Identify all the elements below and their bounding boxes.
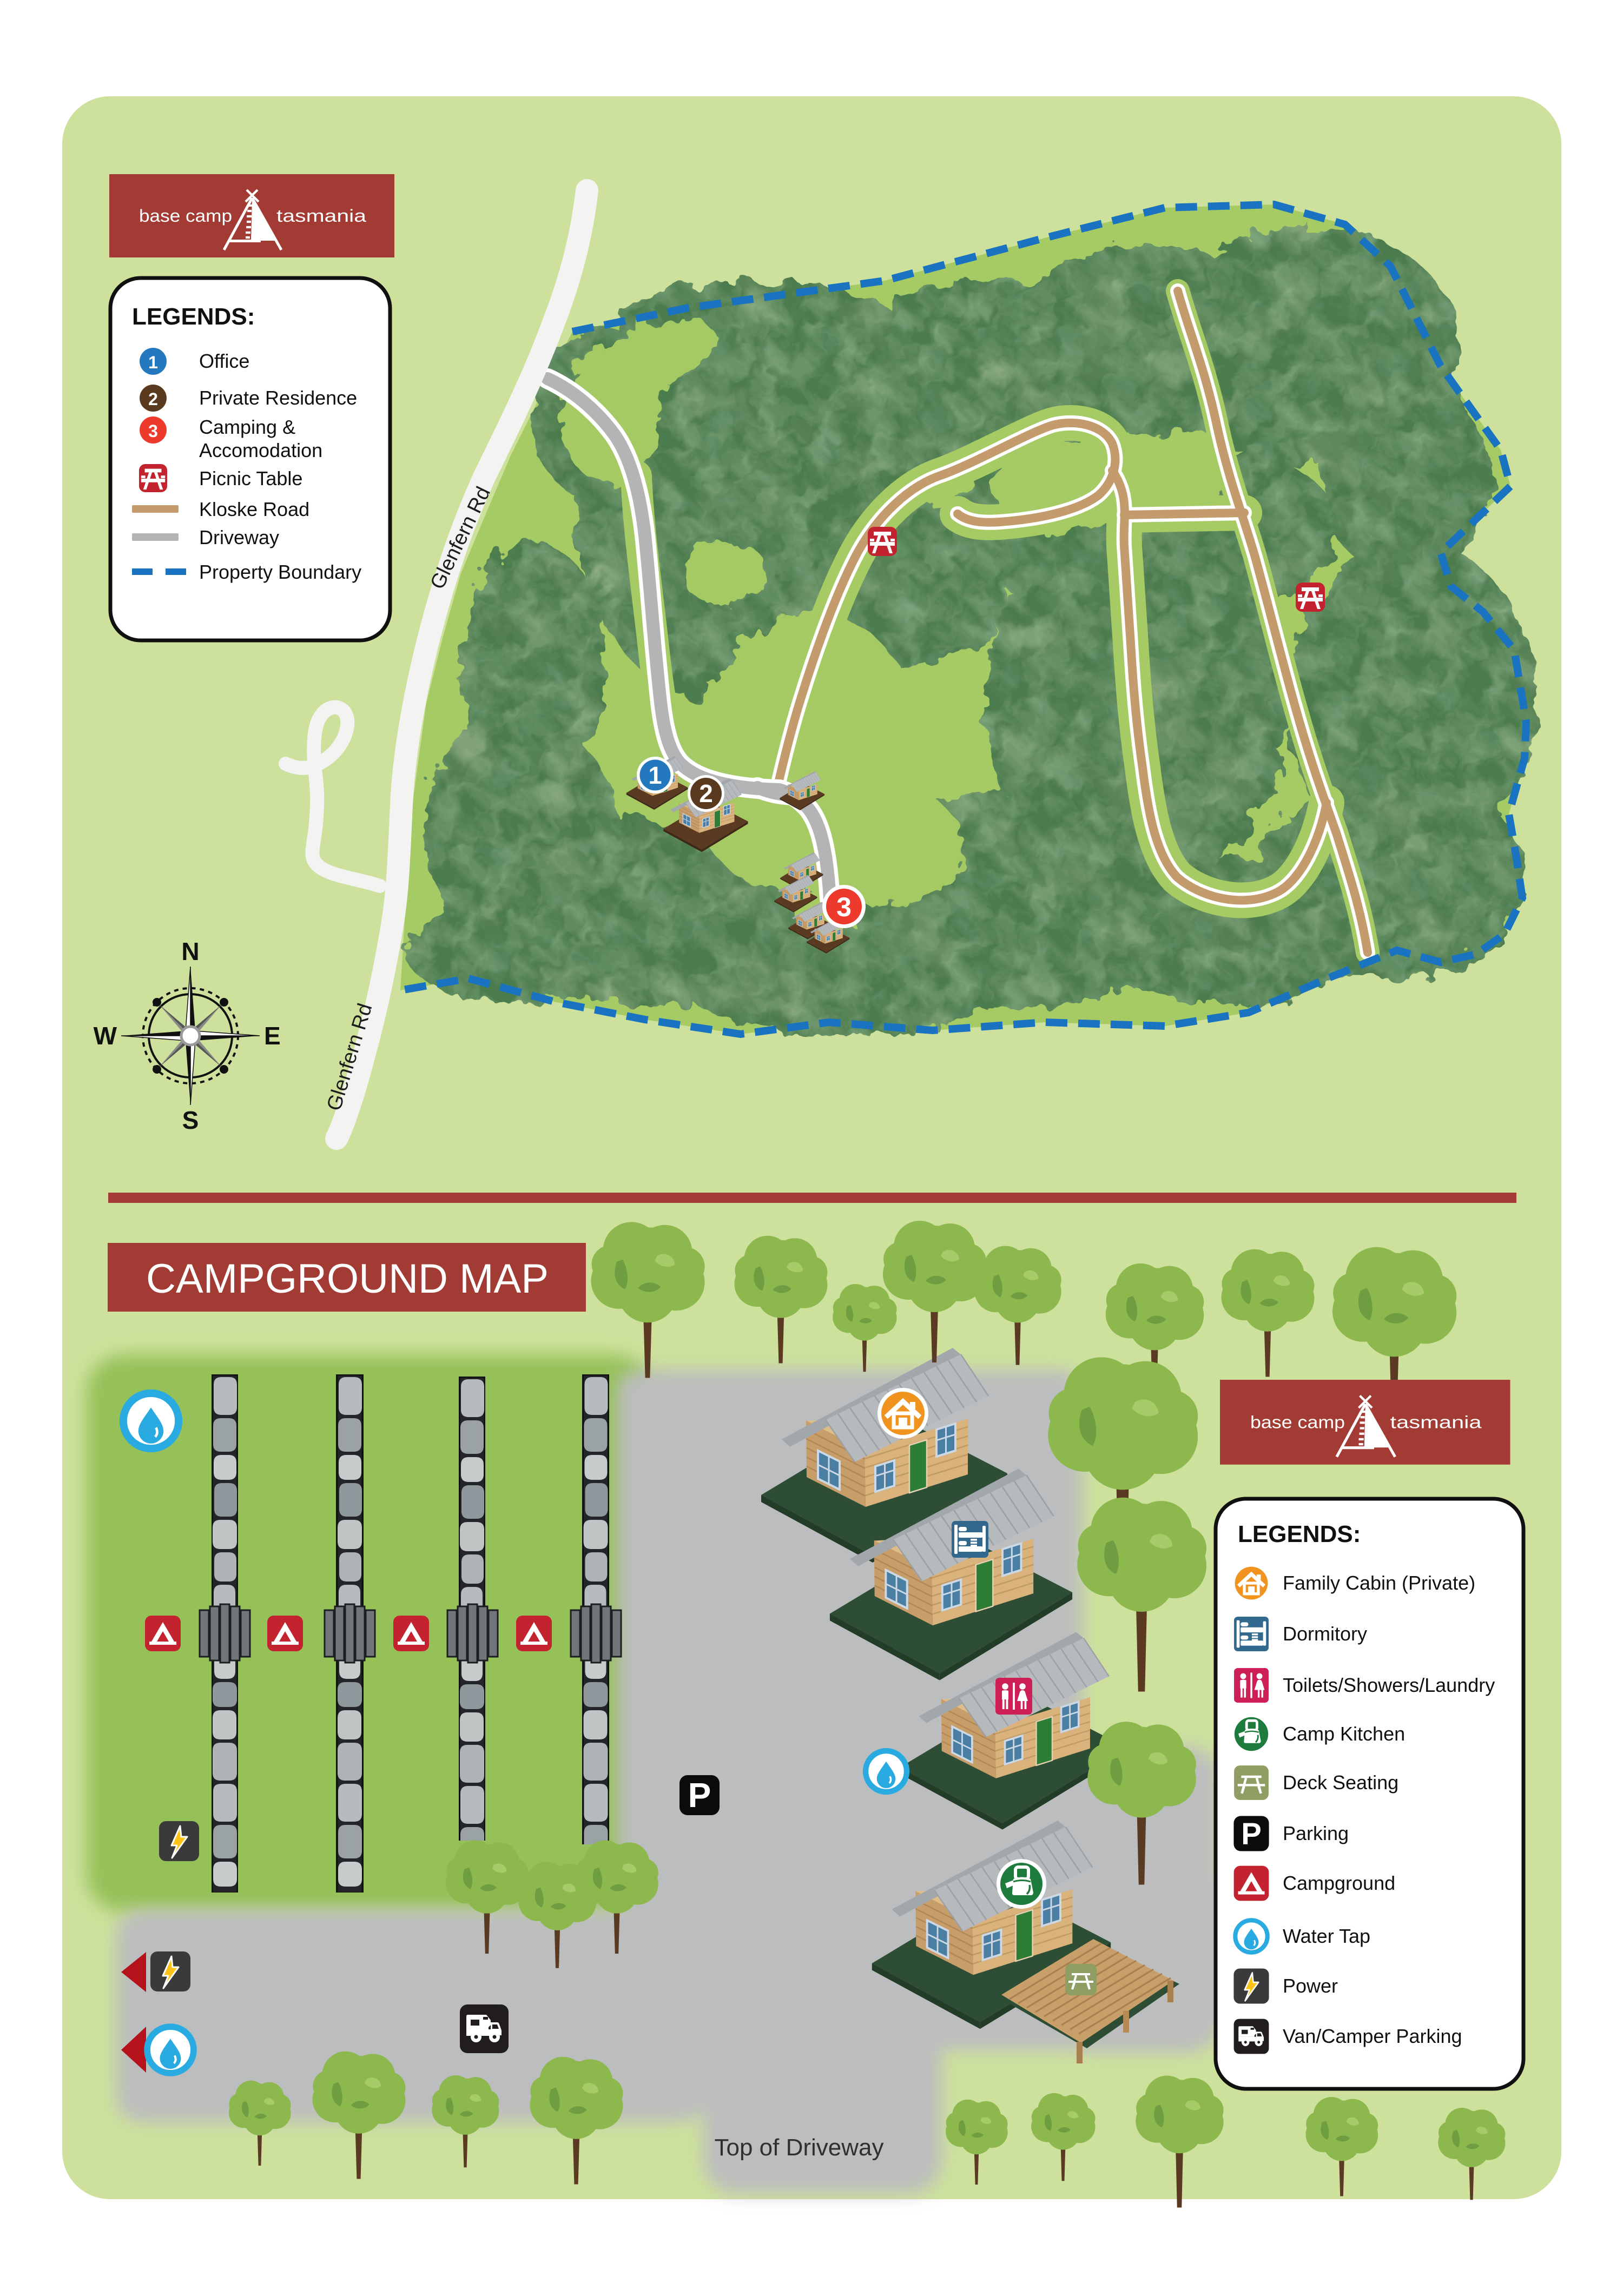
svg-text:2: 2 (699, 779, 713, 808)
svg-text:W: W (94, 1022, 117, 1050)
svg-text:Camp Kitchen: Camp Kitchen (1283, 1723, 1405, 1745)
svg-text:S: S (182, 1106, 199, 1134)
svg-text:Van/Camper Parking: Van/Camper Parking (1283, 2025, 1462, 2047)
svg-text:Accomodation: Accomodation (199, 439, 322, 461)
svg-text:Top of Driveway: Top of Driveway (714, 2134, 883, 2161)
svg-text:1: 1 (148, 353, 158, 372)
svg-text:LEGENDS:: LEGENDS: (1238, 1521, 1361, 1547)
svg-text:Water Tap: Water Tap (1283, 1925, 1370, 1947)
svg-text:Property Boundary: Property Boundary (199, 561, 361, 583)
svg-text:3: 3 (836, 892, 852, 922)
svg-text:CAMPGROUND MAP: CAMPGROUND MAP (146, 1256, 549, 1302)
svg-text:Driveway: Driveway (199, 526, 279, 548)
svg-text:1: 1 (648, 762, 662, 789)
svg-text:Family Cabin (Private): Family Cabin (Private) (1283, 1572, 1475, 1594)
svg-text:Private Residence: Private Residence (199, 387, 357, 409)
svg-text:Dormitory: Dormitory (1283, 1623, 1367, 1645)
svg-text:Kloske Road: Kloske Road (199, 498, 309, 520)
svg-text:Campground: Campground (1283, 1872, 1395, 1894)
svg-text:E: E (264, 1022, 281, 1050)
svg-text:LEGENDS:: LEGENDS: (132, 303, 255, 330)
svg-text:Parking: Parking (1283, 1822, 1349, 1844)
svg-text:N: N (181, 937, 199, 965)
svg-text:2: 2 (148, 389, 158, 409)
svg-text:Power: Power (1283, 1975, 1338, 1997)
svg-text:Toilets/Showers/Laundry: Toilets/Showers/Laundry (1283, 1674, 1495, 1696)
svg-text:Picnic Table: Picnic Table (199, 467, 302, 489)
svg-text:Deck Seating: Deck Seating (1283, 1771, 1398, 1794)
svg-text:Camping &: Camping & (199, 416, 295, 438)
svg-text:3: 3 (148, 421, 158, 441)
svg-text:Office: Office (199, 350, 249, 372)
